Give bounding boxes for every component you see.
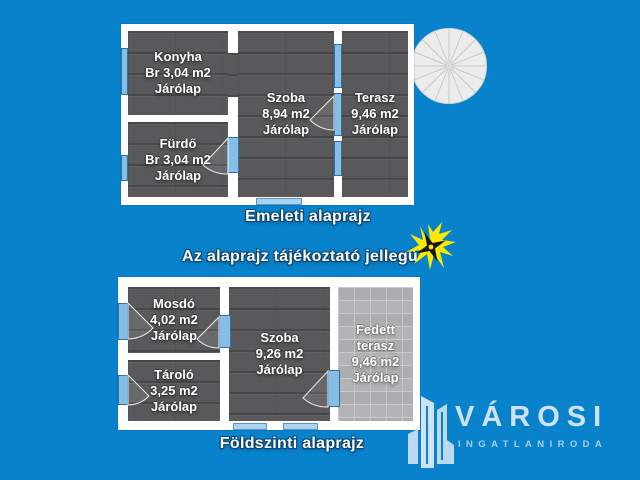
room-mosdo-label: Mosdó 4,02 m2 Járólap bbox=[150, 296, 198, 344]
room-floor-type: Járólap bbox=[145, 168, 211, 184]
door-terasz bbox=[334, 93, 342, 136]
room-area: 9,46 m2 bbox=[351, 106, 399, 122]
room-furdo-label: Fürdő Br 3,04 m2 Járólap bbox=[145, 136, 211, 184]
buildings-logo-icon bbox=[402, 388, 458, 470]
room-floor-type: Járólap bbox=[256, 362, 304, 378]
room-konyha-label: Konyha Br 3,04 m2 Járólap bbox=[145, 49, 211, 97]
logo-brand-text: VÁROSI bbox=[455, 401, 608, 434]
room-szoba-lower-label: Szoba 9,26 m2 Járólap bbox=[256, 330, 304, 378]
agency-logo: VÁROSI INGATLANIRODA bbox=[398, 385, 628, 470]
window-mosdo bbox=[118, 303, 128, 340]
star-burst-icon bbox=[405, 221, 457, 273]
room-fedett-terasz-label: Fedett terasz 9,46 m2 Járólap bbox=[352, 322, 400, 386]
room-name: Fürdő bbox=[145, 136, 211, 152]
room-area: 9,26 m2 bbox=[256, 346, 304, 362]
room-floor-type: Járólap bbox=[262, 122, 310, 138]
door-mosdo bbox=[219, 315, 231, 348]
room-area: 8,94 m2 bbox=[262, 106, 310, 122]
wall-opening-konyha-szoba bbox=[228, 53, 238, 97]
room-area: 3,25 m2 bbox=[150, 383, 198, 399]
room-area: Br 3,04 m2 bbox=[145, 65, 211, 81]
room-name: Konyha bbox=[145, 49, 211, 65]
room-name: Mosdó bbox=[150, 296, 198, 312]
window-szoba-bottom-2 bbox=[283, 423, 318, 430]
window-szoba-bottom-1 bbox=[233, 423, 267, 430]
room-area: 9,46 m2 bbox=[352, 354, 400, 370]
room-floor-type: Járólap bbox=[150, 328, 198, 344]
window-terasz-2 bbox=[334, 141, 342, 176]
door-fedett-terasz bbox=[328, 370, 340, 407]
room-name: Fedett bbox=[352, 322, 400, 338]
room-name: Tároló bbox=[150, 367, 198, 383]
lower-plan-caption: Földszinti alaprajz bbox=[142, 435, 442, 453]
spiral-staircase-icon bbox=[410, 27, 488, 105]
room-terasz-label: Terasz 9,46 m2 Járólap bbox=[351, 90, 399, 138]
upper-floor-plan: Konyha Br 3,04 m2 Járólap Fürdő Br 3,04 … bbox=[121, 24, 414, 205]
logo-subtitle-text: INGATLANIRODA bbox=[458, 439, 607, 450]
room-tarolo: Tároló 3,25 m2 Járólap bbox=[128, 360, 220, 421]
room-floor-type: Járólap bbox=[352, 370, 400, 386]
room-konyha: Konyha Br 3,04 m2 Járólap bbox=[128, 31, 228, 115]
room-name: Szoba bbox=[256, 330, 304, 346]
door-furdo bbox=[227, 137, 239, 173]
room-terasz: Terasz 9,46 m2 Járólap bbox=[342, 31, 408, 197]
window-tarolo bbox=[118, 375, 128, 405]
room-floor-type: Járólap bbox=[150, 399, 198, 415]
room-name: Szoba bbox=[262, 90, 310, 106]
room-name: Terasz bbox=[351, 90, 399, 106]
window-szoba-bottom bbox=[256, 198, 302, 205]
flyer-canvas: Konyha Br 3,04 m2 Járólap Fürdő Br 3,04 … bbox=[0, 0, 640, 480]
room-szoba-lower: Szoba 9,26 m2 Járólap bbox=[229, 287, 330, 421]
window-konyha bbox=[121, 48, 128, 95]
window-furdo bbox=[121, 155, 128, 181]
room-area: Br 3,04 m2 bbox=[145, 152, 211, 168]
room-furdo: Fürdő Br 3,04 m2 Járólap bbox=[128, 122, 228, 197]
room-name-2: terasz bbox=[352, 338, 400, 354]
room-szoba-upper: Szoba 8,94 m2 Járólap bbox=[238, 31, 334, 197]
room-tarolo-label: Tároló 3,25 m2 Járólap bbox=[150, 367, 198, 415]
room-floor-type: Járólap bbox=[145, 81, 211, 97]
room-szoba-upper-label: Szoba 8,94 m2 Járólap bbox=[262, 90, 310, 138]
lower-floor-plan: Mosdó 4,02 m2 Járólap Tároló 3,25 m2 Jár… bbox=[118, 277, 420, 430]
room-mosdo: Mosdó 4,02 m2 Járólap bbox=[128, 287, 220, 353]
upper-plan-caption: Emeleti alaprajz bbox=[188, 208, 428, 226]
room-area: 4,02 m2 bbox=[150, 312, 198, 328]
room-floor-type: Járólap bbox=[351, 122, 399, 138]
window-terasz-1 bbox=[334, 44, 342, 88]
